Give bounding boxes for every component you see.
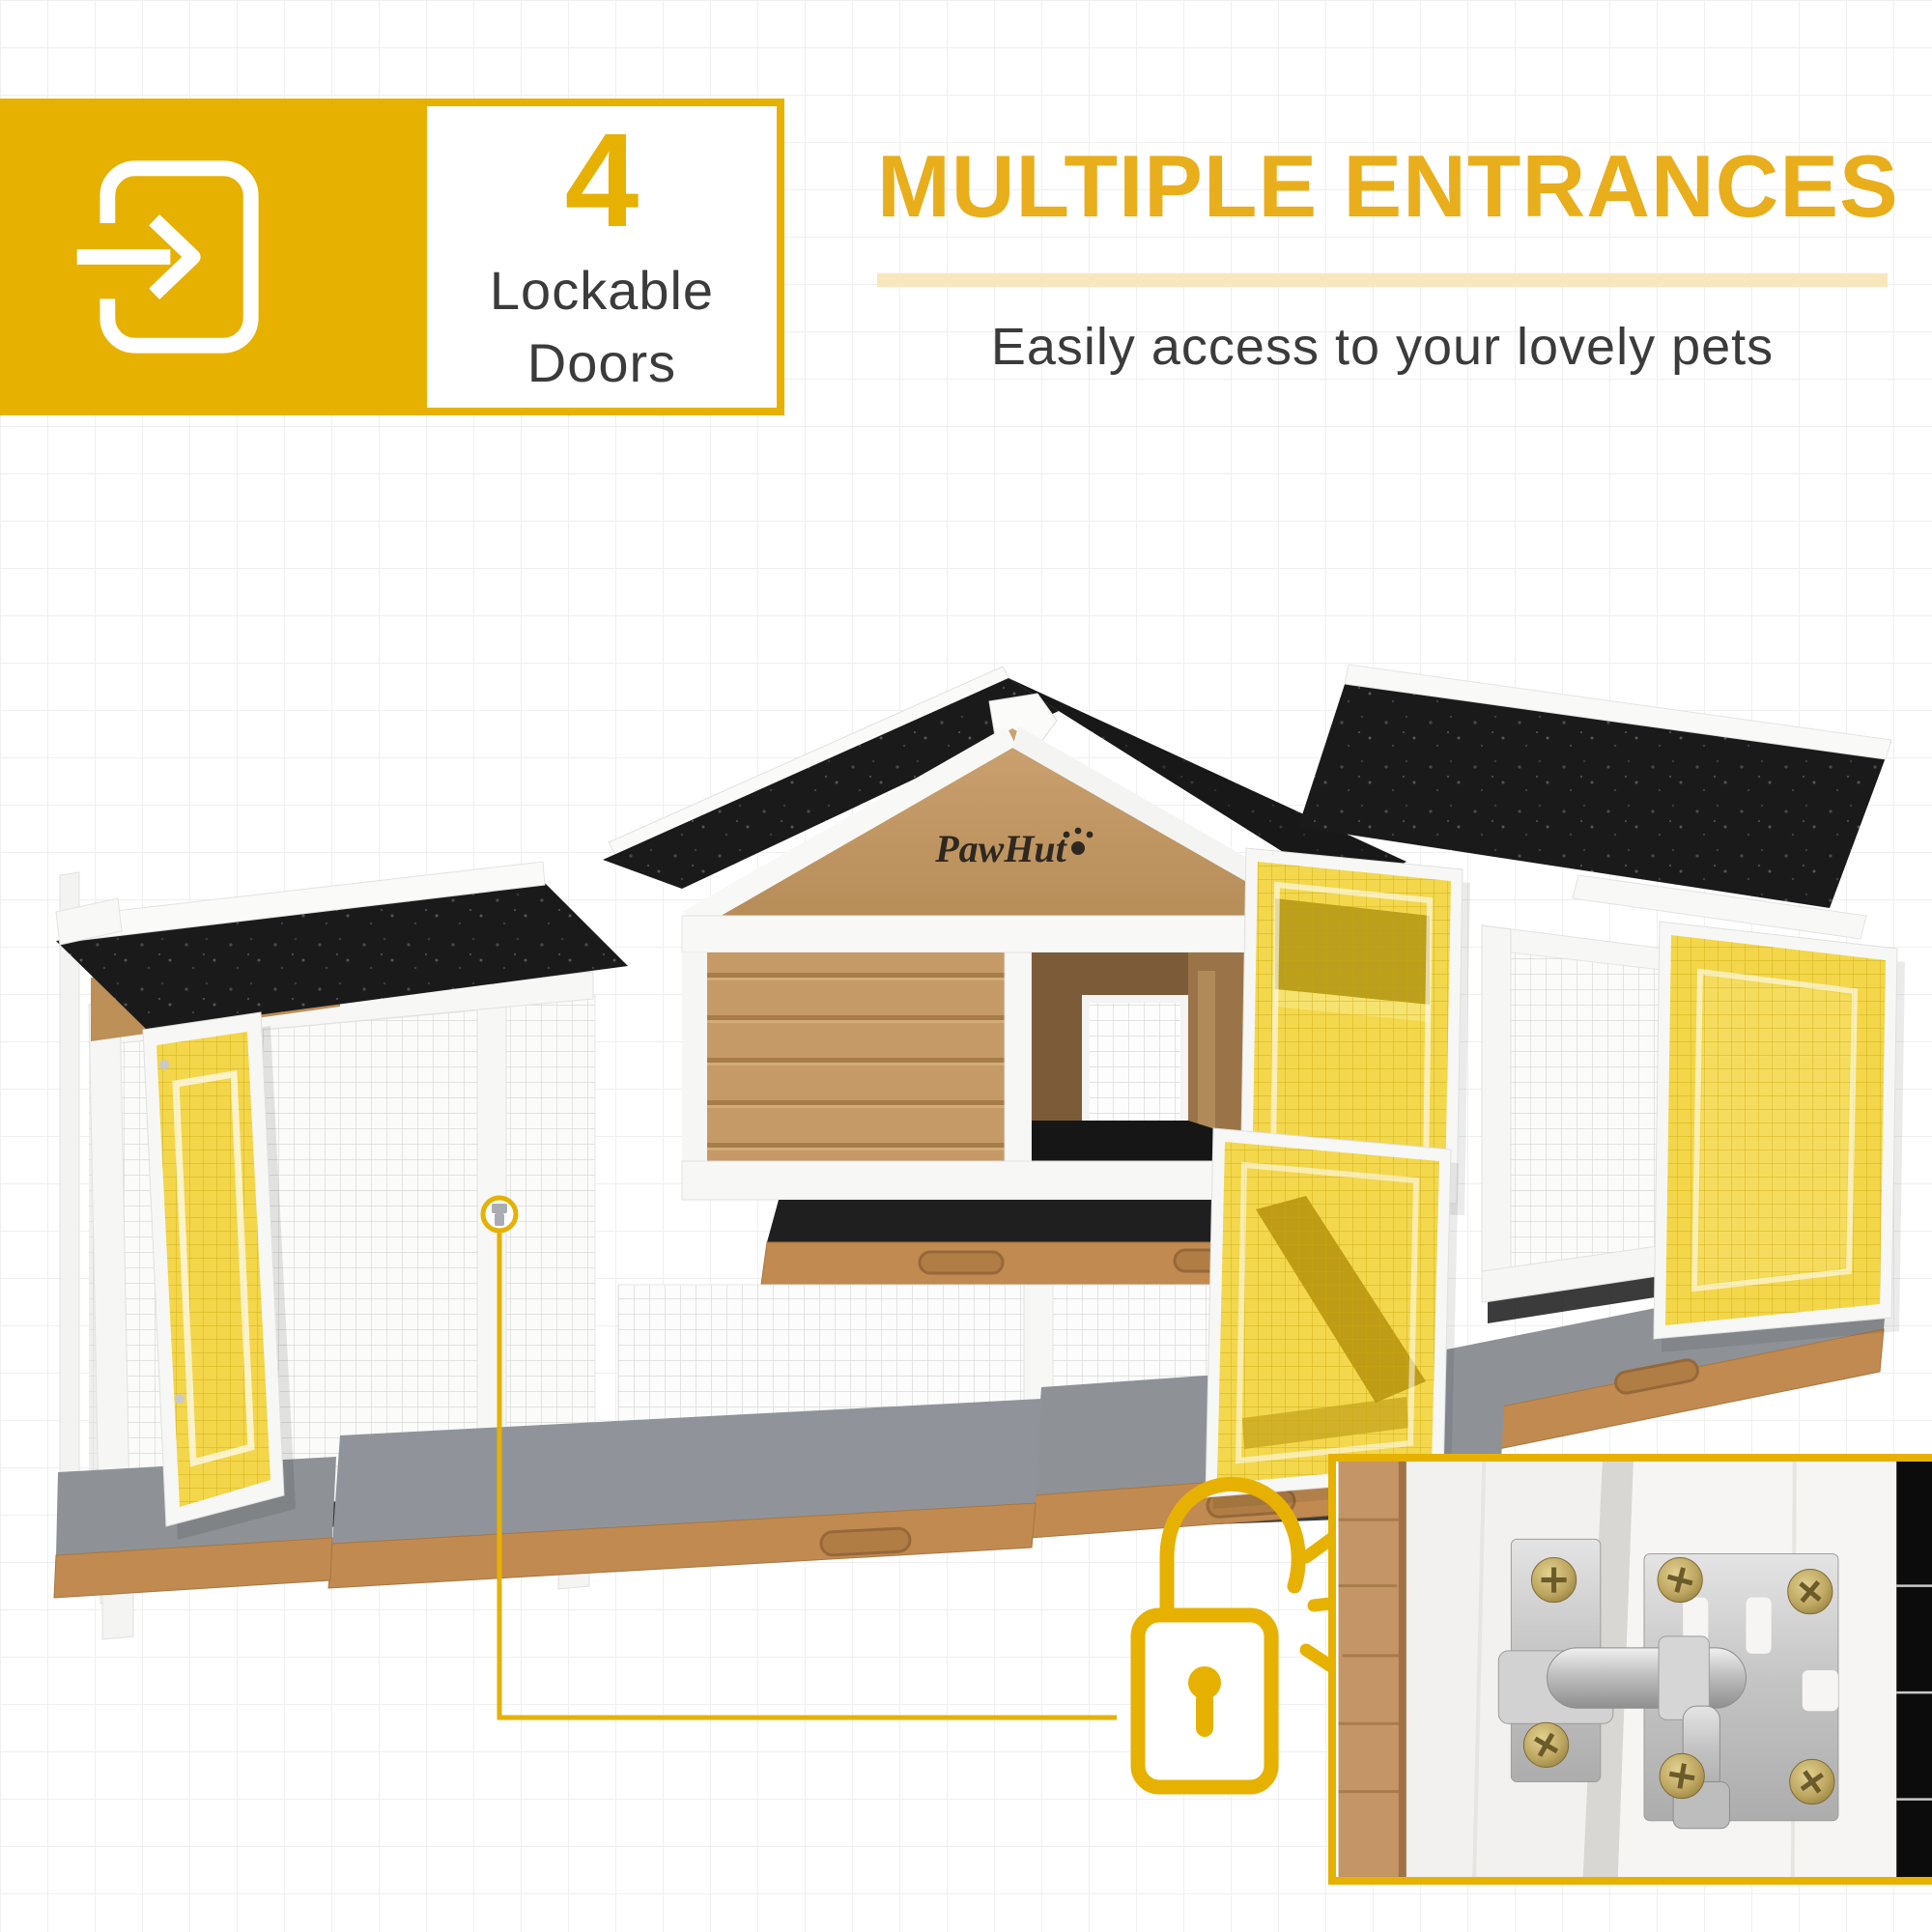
mesh-interior [1896, 1462, 1932, 1877]
highlighted-door-right [1654, 922, 1905, 1352]
enter-door-icon [75, 137, 269, 377]
badge-label-line2: Doors [427, 331, 777, 394]
highlighted-door-left [143, 1012, 296, 1540]
wood-edge [1339, 1462, 1406, 1877]
title-divider [877, 273, 1888, 287]
page-subtitle: Easily access to your lovely pets [877, 317, 1888, 377]
headline-block: MULTIPLE ENTRANCES Easily access to your… [877, 141, 1888, 402]
latch-photo-illustration [1336, 1462, 1932, 1877]
page-title: MULTIPLE ENTRANCES [877, 141, 1888, 234]
badge-count: 4 [427, 114, 777, 247]
highlighted-door-lower [1206, 1128, 1459, 1509]
badge-label-line1: Lockable [427, 259, 777, 322]
bolt-cylinder [1548, 1648, 1747, 1708]
feature-badge: 4 Lockable Doors [0, 99, 784, 415]
svg-text:PawHut: PawHut [934, 827, 1067, 870]
badge-panel: 4 Lockable Doors [427, 106, 777, 408]
latch-closeup-photo [1328, 1454, 1932, 1885]
